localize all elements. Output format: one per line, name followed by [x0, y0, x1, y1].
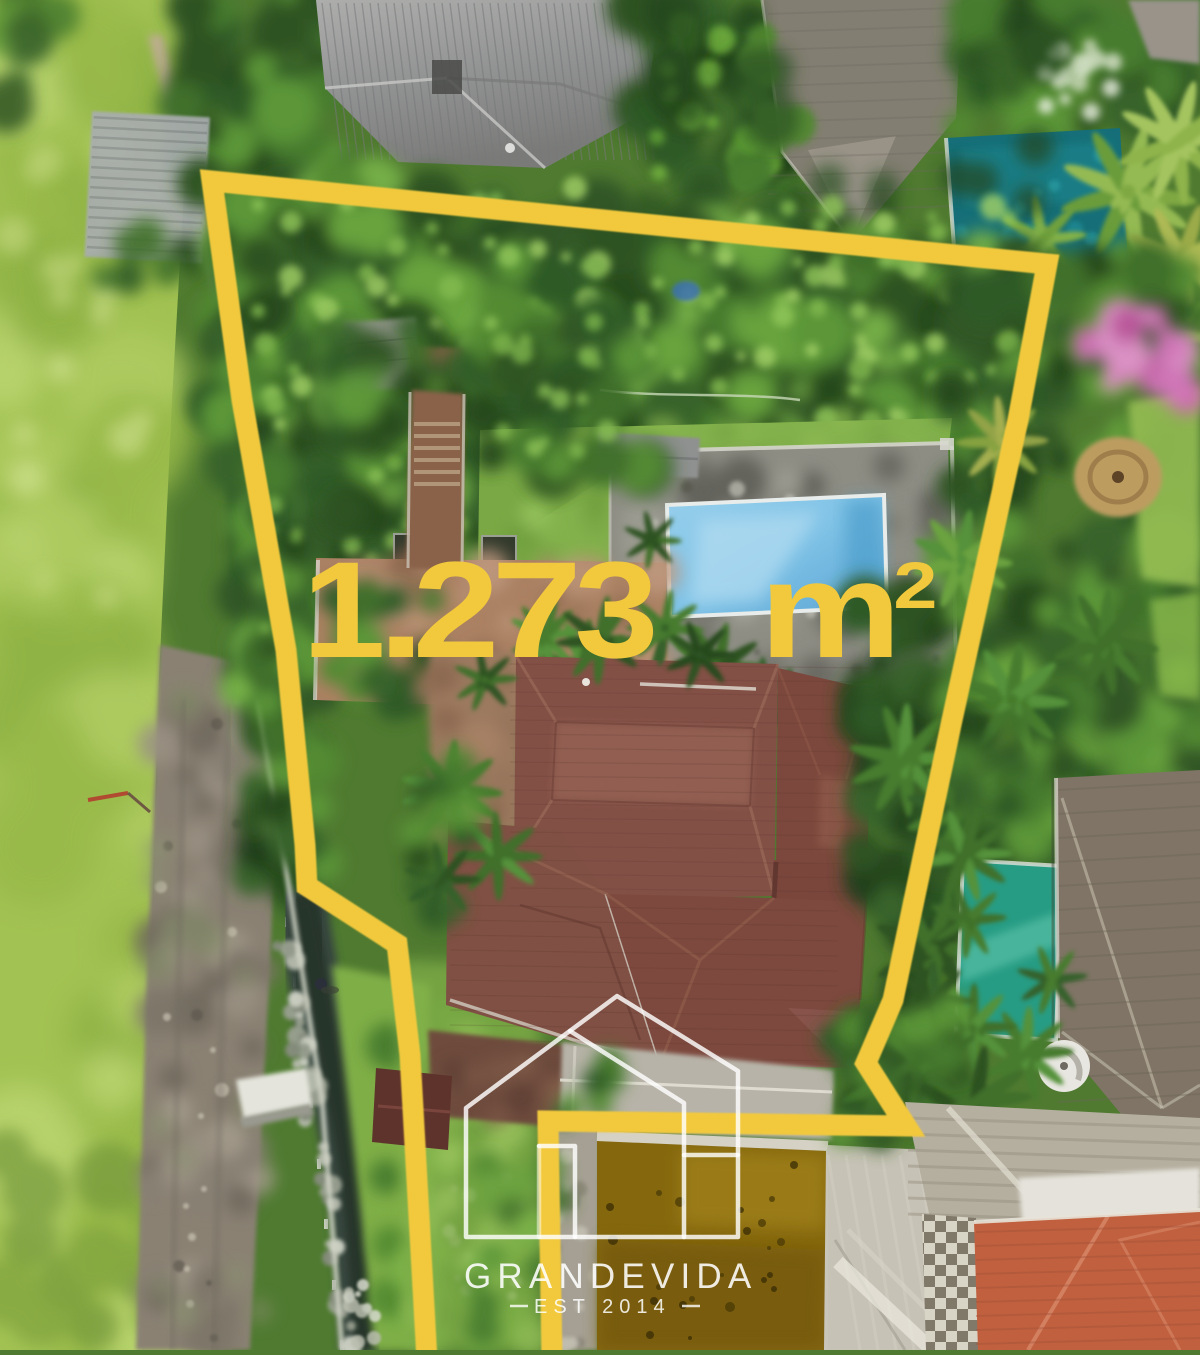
svg-text:2: 2 [413, 534, 500, 687]
svg-text:1: 1 [302, 534, 386, 686]
svg-text:3: 3 [574, 533, 658, 687]
svg-text:GRANDEVIDA: GRANDEVIDA [464, 1257, 757, 1296]
svg-text:2: 2 [893, 549, 937, 622]
svg-text:EST 2014: EST 2014 [534, 1296, 671, 1318]
svg-text:7: 7 [492, 533, 582, 686]
svg-text:m: m [760, 533, 902, 687]
